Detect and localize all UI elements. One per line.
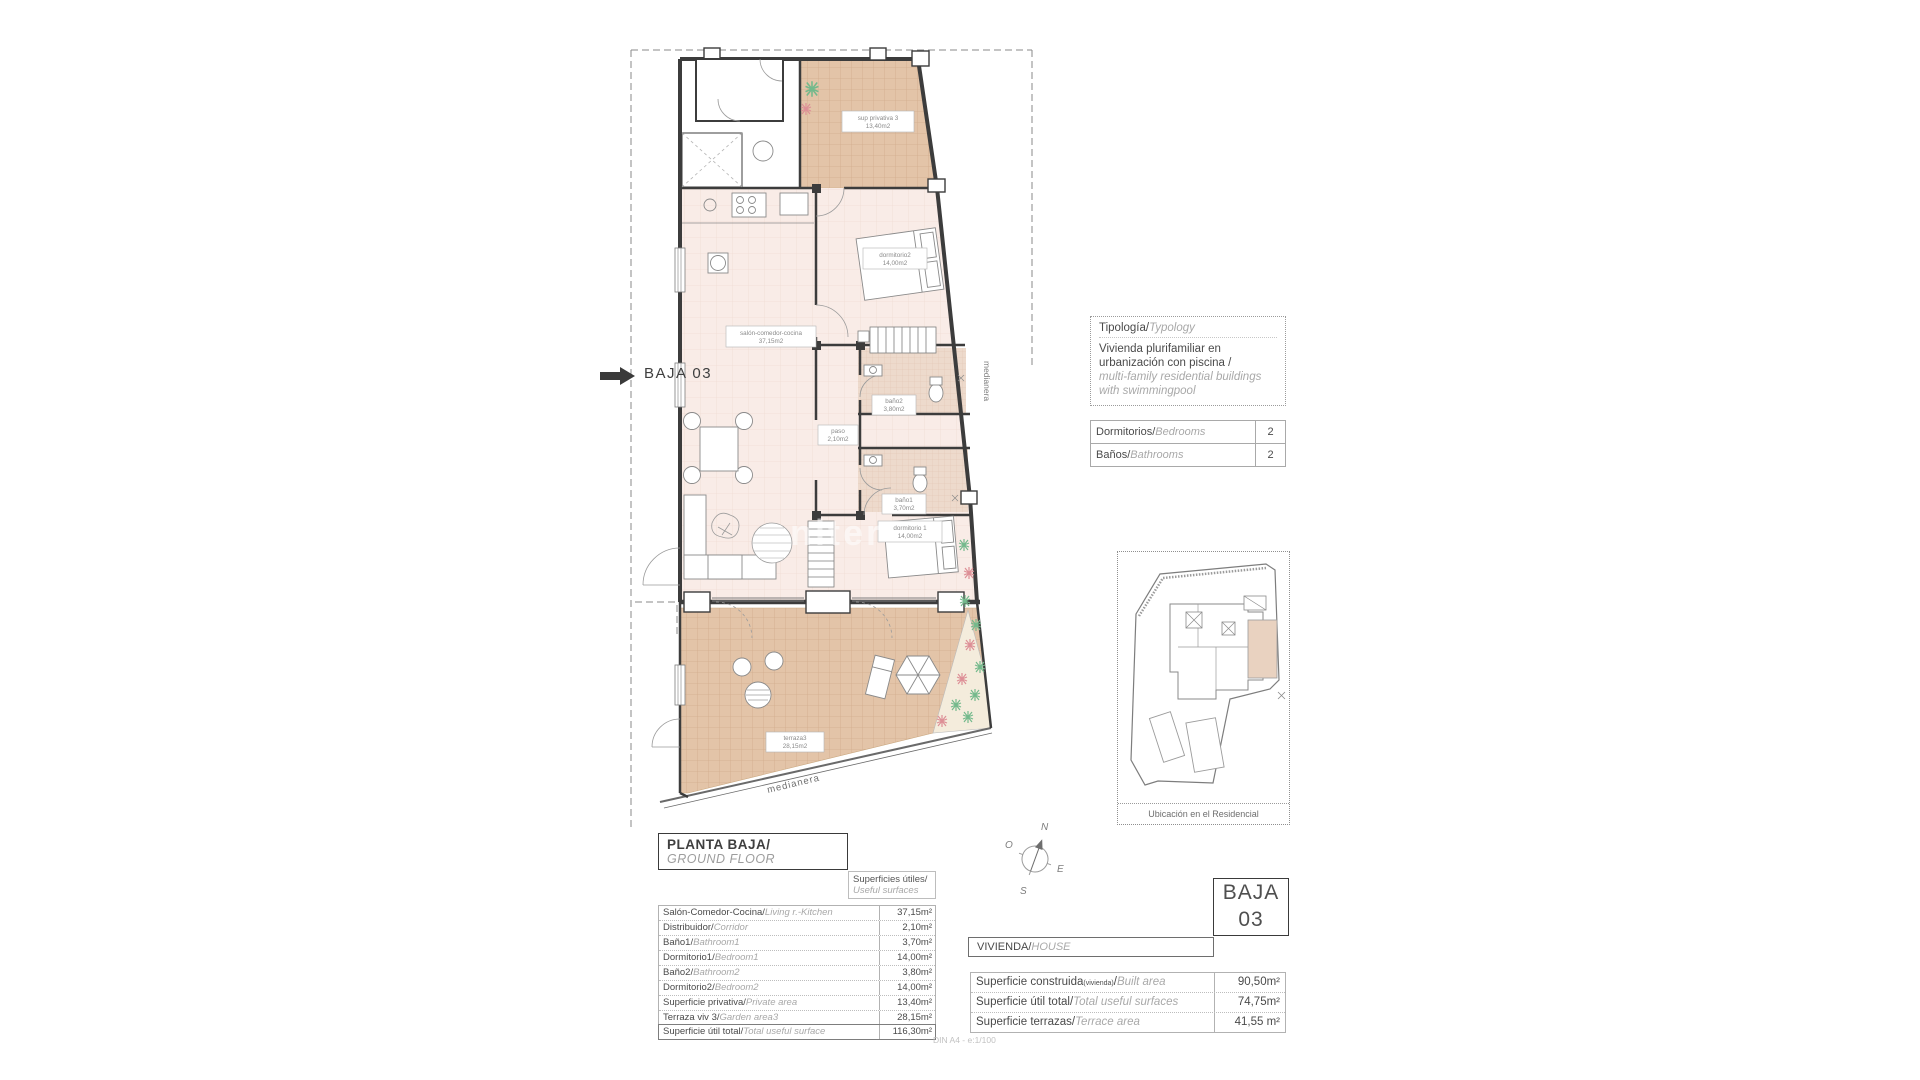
bathrooms-label-en: Bathrooms — [1130, 449, 1183, 461]
table-row: Superficie terrazas/Terrace area 41,55 m… — [971, 1012, 1285, 1032]
bedrooms-label-en: Bedrooms — [1155, 426, 1205, 438]
svg-text:28,15m2: 28,15m2 — [783, 743, 808, 750]
table-row: Dormitorio2/Bedroom2 14,00m² — [659, 980, 935, 995]
svg-text:paso: paso — [831, 428, 845, 435]
vivienda-label-es: VIVIENDA/ — [977, 941, 1031, 953]
floor-plan-drawing: sup privativa 3 13,40m2 dormitorio2 14,0… — [620, 45, 1060, 845]
svg-text:14,00m2: 14,00m2 — [898, 533, 923, 540]
svg-text:dormitorio 1: dormitorio 1 — [893, 525, 927, 532]
useful-surfaces-table: Salón-Comedor-Cocina/Living r.-Kitchen 3… — [658, 905, 936, 1040]
row-value: 2,10m² — [879, 921, 935, 935]
surfaces-header-en: Useful surfaces — [853, 885, 935, 896]
room-label-salon: salón-comedor-cocina 37,15m2 — [726, 326, 816, 347]
compass-east-label: E — [1057, 864, 1064, 875]
bathrooms-count: 2 — [1255, 444, 1285, 466]
table-row: Baños/Bathrooms 2 — [1091, 443, 1285, 466]
vivienda-header-bar: VIVIENDA/HOUSE — [968, 937, 1214, 957]
surfaces-header-es: Superficies útiles/ — [853, 874, 935, 885]
table-row: Superficie construida(vivienda)/Built ar… — [971, 973, 1285, 992]
svg-text:37,15m2: 37,15m2 — [759, 338, 784, 345]
typology-title-en: Typology — [1149, 322, 1195, 334]
totals-table: Superficie construida(vivienda)/Built ar… — [970, 972, 1286, 1033]
unit-number-box: BAJA 03 — [1213, 878, 1289, 936]
bedrooms-count: 2 — [1255, 421, 1285, 443]
table-row: Superficie útil total/Total useful surfa… — [971, 992, 1285, 1012]
location-map-box: Ubicación en el Residencial — [1117, 551, 1290, 825]
room-label-dormitorio2: dormitorio2 14,00m2 — [863, 248, 927, 269]
compass-west-label: O — [1005, 840, 1013, 851]
table-row: Terraza viv 3/Garden area3 28,15m² — [659, 1010, 935, 1025]
row-value: 14,00m² — [879, 951, 935, 965]
typology-body-en: multi-family residential buildings with … — [1099, 370, 1271, 398]
medianera-label-right: medianera — [982, 361, 992, 401]
unit-indicator-label: BAJA 03 — [644, 365, 712, 382]
table-row: Dormitorio1/Bedroom1 14,00m² — [659, 950, 935, 965]
terrace-floor — [680, 608, 984, 793]
room-label-sup-privativa: sup privativa 3 13,40m2 — [842, 111, 914, 132]
svg-text:2,10m2: 2,10m2 — [827, 436, 849, 443]
typology-box: Tipología/Typology Vivienda plurifamilia… — [1090, 316, 1286, 406]
room-label-terraza3: terraza3 28,15m2 — [766, 732, 824, 752]
stair-lobby — [682, 59, 783, 187]
row-value: 28,15m² — [879, 1011, 935, 1025]
rug — [752, 523, 792, 563]
svg-text:terraza3: terraza3 — [783, 735, 807, 742]
svg-text:baño1: baño1 — [895, 497, 913, 504]
table-row: Distribuidor/Corridor 2,10m² — [659, 920, 935, 935]
room-label-dormitorio1: dormitorio 1 14,00m2 — [878, 521, 942, 542]
svg-text:dormitorio2: dormitorio2 — [879, 252, 911, 259]
vivienda-label-en: HOUSE — [1031, 941, 1070, 953]
location-caption: Ubicación en el Residencial — [1118, 803, 1289, 824]
rooms-count-table: Dormitorios/Bedrooms 2 Baños/Bathrooms 2 — [1090, 420, 1286, 467]
svg-text:3,70m2: 3,70m2 — [893, 505, 915, 512]
svg-text:baño2: baño2 — [885, 398, 903, 405]
compass-rose: N O E S — [995, 812, 1075, 904]
table-row-total: Superficie útil total/Total useful surfa… — [658, 1024, 936, 1040]
row-value: 37,15m² — [879, 906, 935, 920]
room-label-bano2: baño2 3,80m2 — [872, 395, 916, 415]
unit-number-line1: BAJA — [1214, 879, 1288, 906]
terrace-area-value: 41,55 m² — [1214, 1013, 1285, 1032]
row-value: 14,00m² — [879, 981, 935, 995]
typology-title: Tipología/Typology — [1099, 322, 1277, 338]
table-row: Baño2/Bathroom2 3,80m² — [659, 965, 935, 980]
room-label-paso: paso 2,10m2 — [818, 425, 858, 445]
highlighted-unit — [1248, 620, 1277, 678]
useful-area-value: 74,75m² — [1214, 993, 1285, 1012]
table-row: Dormitorios/Bedrooms 2 — [1091, 421, 1285, 443]
svg-text:sup privativa 3: sup privativa 3 — [858, 115, 899, 122]
svg-text:3,80m2: 3,80m2 — [883, 406, 905, 413]
room-label-bano1: baño1 3,70m2 — [882, 494, 926, 514]
plan-sheet: sup privativa 3 13,40m2 dormitorio2 14,0… — [0, 0, 1920, 1080]
sheet-title-en: GROUND FLOOR — [667, 852, 847, 866]
scale-note: DIN A4 - e:1/100 — [933, 1035, 996, 1045]
row-value: 116,30m² — [879, 1025, 935, 1039]
surfaces-header: Superficies útiles/ Useful surfaces — [848, 871, 936, 899]
sheet-title-box: PLANTA BAJA/ GROUND FLOOR — [658, 833, 848, 870]
bedrooms-label-es: Dormitorios/ — [1096, 426, 1155, 438]
row-value: 3,70m² — [879, 936, 935, 950]
row-value: 13,40m² — [879, 996, 935, 1010]
typology-body-es: Vivienda plurifamiliar en urbanización c… — [1099, 342, 1267, 370]
compass-north-label: N — [1041, 822, 1049, 833]
built-area-value: 90,50m² — [1214, 973, 1285, 992]
sheet-title-es: PLANTA BAJA/ — [667, 837, 847, 852]
svg-text:14,00m2: 14,00m2 — [883, 260, 908, 267]
bathrooms-label-es: Baños/ — [1096, 449, 1130, 461]
svg-text:13,40m2: 13,40m2 — [866, 123, 891, 130]
compass-south-label: S — [1020, 886, 1027, 897]
svg-text:salón-comedor-cocina: salón-comedor-cocina — [740, 330, 802, 337]
table-row: Salón-Comedor-Cocina/Living r.-Kitchen 3… — [659, 906, 935, 920]
row-value: 3,80m² — [879, 966, 935, 980]
location-site-plan — [1118, 552, 1289, 804]
typology-title-es: Tipología/ — [1099, 322, 1149, 334]
unit-number-line2: 03 — [1214, 906, 1288, 933]
table-row: Baño1/Bathroom1 3,70m² — [659, 935, 935, 950]
unit-indicator-arrow-icon — [600, 366, 636, 386]
table-row: Superficie privativa/Private area 13,40m… — [659, 995, 935, 1010]
